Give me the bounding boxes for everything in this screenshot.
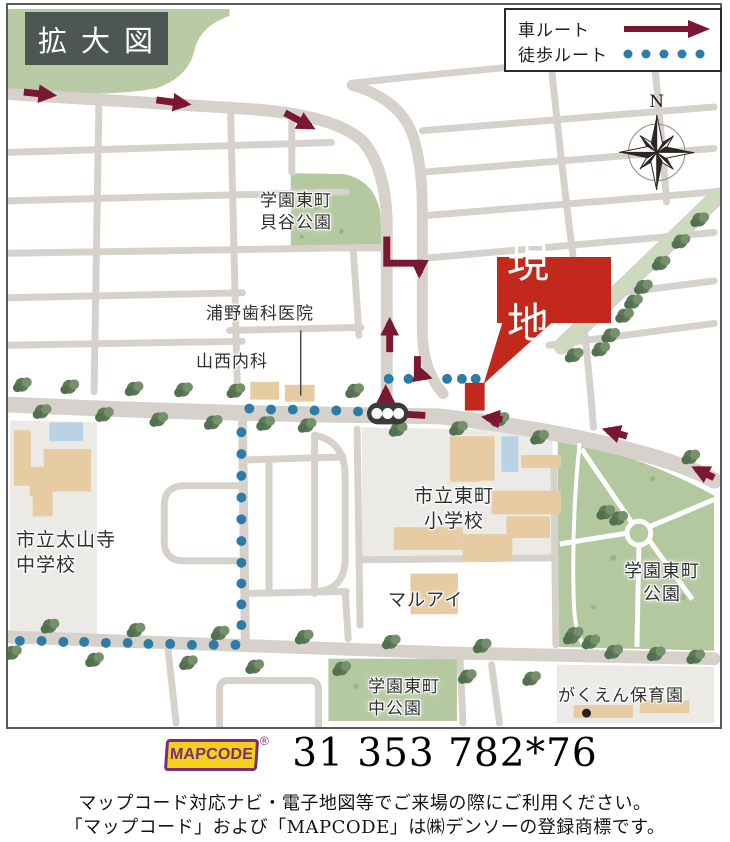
mapcode-section: MAPCODE ® 31 353 782*76 (0, 733, 730, 778)
nursery-dot (582, 709, 591, 718)
label-kaiya-park: 学園東町貝谷公園 (250, 190, 342, 234)
label-maruai: マルアイ (388, 589, 463, 612)
map-title: 拡大図 (38, 18, 167, 60)
walk-route-label: 徒歩ルート (518, 41, 620, 66)
legend-walk-route-row: 徒歩ルート (518, 41, 720, 66)
label-hoikuen: がくえん保育園 (558, 685, 684, 707)
walk-route-dots-icon (620, 47, 715, 61)
traffic-light-icon (367, 403, 409, 425)
mapcode-note-line1: マップコード対応ナビ・電子地図等でご来場の際にご利用ください。 (0, 789, 730, 815)
label-naka-park: 学園東町中公園 (368, 676, 440, 720)
label-gakuen-park: 学園東町公園 (614, 560, 710, 607)
map-title-box: 拡大図 (25, 12, 168, 65)
legend-car-route-row: 車ルート (518, 16, 720, 41)
label-yamanishi-clinic: 山西内科 (196, 351, 268, 373)
map-canvas: N (6, 3, 722, 729)
registered-trademark-mark: ® (260, 734, 269, 748)
enlarged-access-map: N 拡大図 車ルート 徒歩ルート 現地 学園東町貝谷公園 (0, 0, 730, 842)
mapcode-logo: MAPCODE (164, 739, 259, 771)
label-urano-dental: 浦野歯科医院 (206, 303, 314, 325)
car-route-arrow-icon (620, 18, 715, 40)
car-route-label: 車ルート (518, 16, 620, 41)
site-callout: 現地 (497, 257, 611, 323)
compass-rose: N (619, 91, 694, 190)
route-legend: 車ルート 徒歩ルート (504, 8, 722, 72)
label-taisanji-school: 市立太山寺中学校 (16, 528, 116, 577)
label-higashimachi-school: 市立東町小学校 (406, 484, 502, 533)
mapcode-number: 31 353 782*76 (285, 731, 605, 776)
map-graphics: N (8, 5, 720, 727)
site-callout-label: 現地 (507, 229, 611, 351)
compass-north-label: N (649, 91, 664, 111)
mapcode-note-line2: 「マップコード」および「MAPCODE」は㈱デンソーの登録商標です。 (0, 813, 730, 839)
